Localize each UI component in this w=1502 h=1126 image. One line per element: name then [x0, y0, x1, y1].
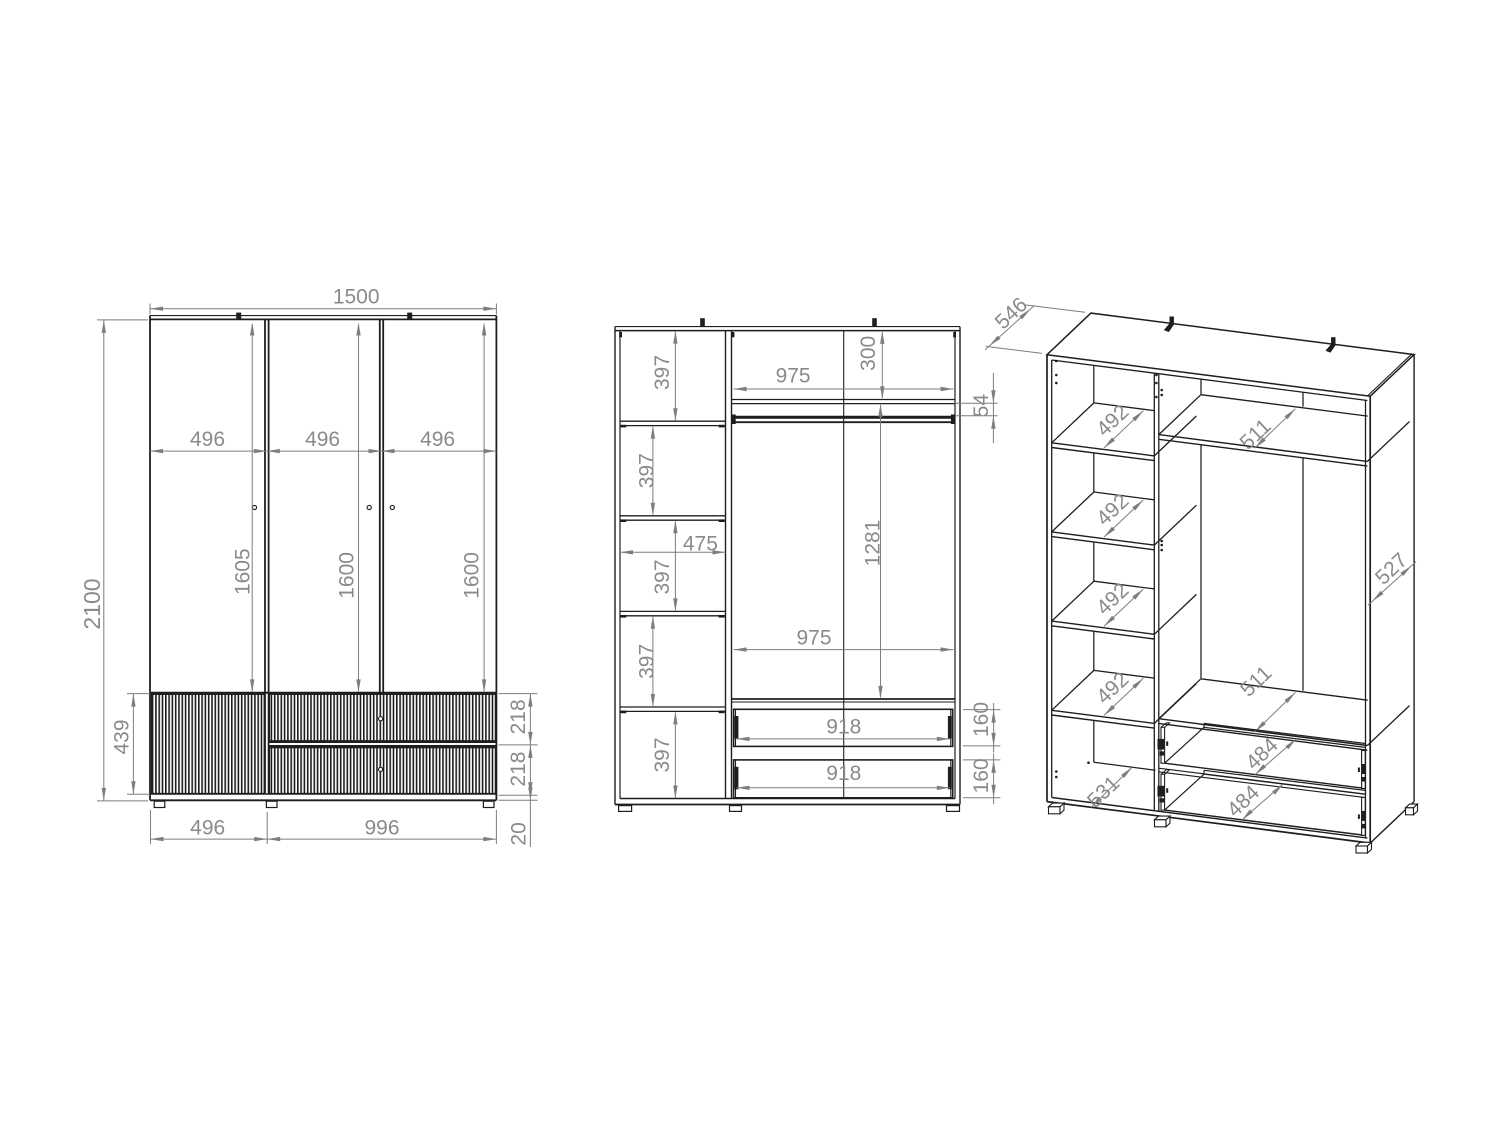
svg-text:1500: 1500: [333, 286, 380, 309]
svg-text:975: 975: [796, 626, 831, 649]
svg-text:496: 496: [420, 428, 455, 451]
svg-text:160: 160: [970, 758, 993, 793]
svg-text:160: 160: [970, 702, 993, 737]
svg-text:496: 496: [190, 816, 225, 839]
svg-text:1600: 1600: [460, 552, 483, 599]
svg-text:996: 996: [364, 816, 399, 839]
svg-text:496: 496: [190, 428, 225, 451]
svg-text:300: 300: [857, 336, 880, 371]
svg-text:1281: 1281: [861, 520, 884, 567]
svg-text:1605: 1605: [232, 548, 255, 595]
svg-text:397: 397: [635, 453, 658, 488]
svg-text:496: 496: [305, 428, 340, 451]
svg-text:2100: 2100: [79, 578, 105, 629]
svg-text:918: 918: [826, 715, 861, 738]
svg-text:397: 397: [651, 355, 674, 390]
svg-text:397: 397: [635, 644, 658, 679]
svg-text:54: 54: [970, 394, 993, 418]
svg-text:439: 439: [110, 719, 133, 754]
svg-text:1600: 1600: [335, 552, 358, 599]
svg-text:475: 475: [683, 533, 718, 556]
svg-text:218: 218: [507, 752, 530, 787]
svg-text:20: 20: [507, 822, 530, 845]
svg-text:918: 918: [826, 762, 861, 785]
svg-text:397: 397: [651, 737, 674, 772]
svg-text:975: 975: [776, 365, 811, 388]
svg-text:397: 397: [651, 559, 674, 594]
svg-text:218: 218: [507, 699, 530, 734]
